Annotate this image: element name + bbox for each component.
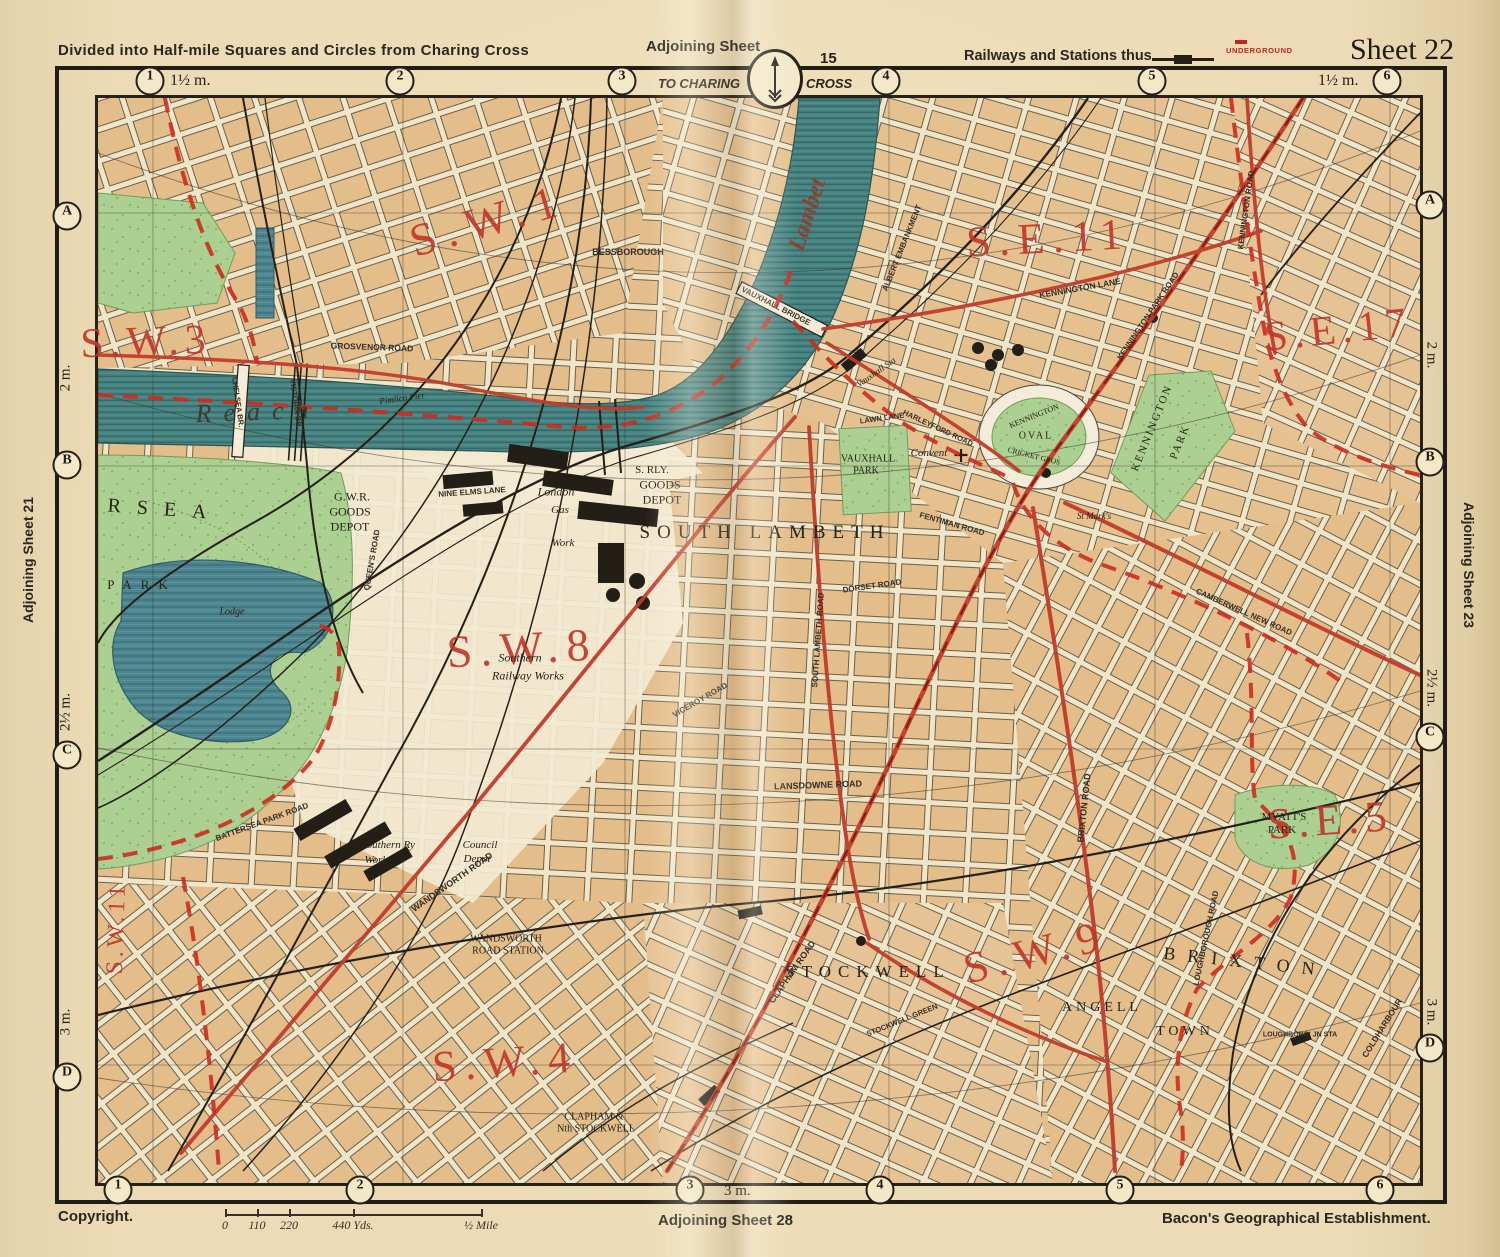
scale-tick [353,1209,355,1217]
adjoining-sheet-top-number: 15 [820,50,837,67]
scale-tick [257,1209,259,1217]
railways-legend-label: Railways and Stations thus [964,48,1152,64]
underground-legend: UNDERGROUND [1226,44,1293,55]
adjoining-sheet-left: Adjoining Sheet 21 [20,497,36,623]
scale-tick [289,1209,291,1217]
bottom-three-mile-label: 3 m. [724,1183,751,1200]
scale-label: ½ Mile [464,1218,498,1233]
adjoining-sheet-top: Adjoining Sheet [646,38,760,55]
scale-tick [481,1209,483,1217]
scale-bar [225,1214,481,1216]
scale-label: 220 [280,1218,298,1233]
header-note: Divided into Half-mile Squares and Circl… [58,42,529,59]
cross-label: CROSS [806,76,852,91]
scale-label: 0 [222,1218,228,1233]
top-distance-right: 1½ m. [1318,72,1358,90]
underground-label: UNDERGROUND [1226,46,1293,55]
adjoining-sheet-right: Adjoining Sheet 23 [1461,502,1477,628]
top-distance-left: 1½ m. [170,72,210,90]
scale-label: 110 [248,1218,265,1233]
copyright: Copyright. [58,1208,133,1225]
scale-tick [225,1209,227,1217]
railway-symbol-icon [1152,58,1214,61]
to-charing-label: TO CHARING [658,76,740,91]
north-arrow-icon [747,49,803,109]
map-sheet-page: Divided into Half-mile Squares and Circl… [0,0,1500,1257]
scale-label: 440 Yds. [332,1218,373,1233]
adjoining-sheet-bottom: Adjoining Sheet 28 [658,1212,793,1229]
publisher: Bacon's Geographical Establishment. [1162,1210,1431,1227]
map-outer-border [55,66,1447,1204]
sheet-number: Sheet 22 [1350,33,1454,67]
